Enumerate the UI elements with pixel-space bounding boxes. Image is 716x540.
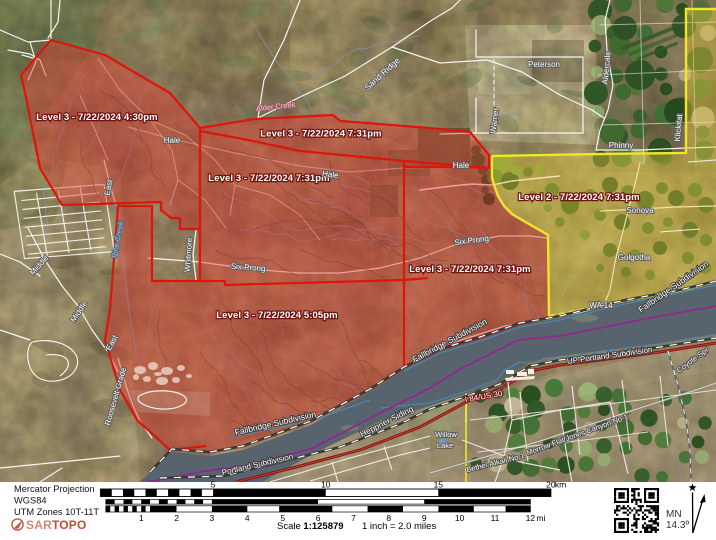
svg-text:15: 15 [434,480,444,490]
svg-text:WA 14: WA 14 [589,301,613,310]
svg-text:Level 2 - 7/22/2024 7:31pm: Level 2 - 7/22/2024 7:31pm [518,192,639,203]
svg-text:Level 3 - 7/22/2024 7:31pm: Level 3 - 7/22/2024 7:31pm [260,129,381,140]
svg-text:10: 10 [321,480,331,490]
svg-text:Lake: Lake [437,441,453,450]
svg-text:7: 7 [351,513,356,523]
svg-text:12: 12 [526,513,536,523]
svg-text:4: 4 [245,513,250,523]
svg-text:5: 5 [211,480,216,490]
svg-text:Phinny: Phinny [609,141,633,150]
svg-text:Level 3 - 7/22/2024 5:05pm: Level 3 - 7/22/2024 5:05pm [216,310,337,321]
svg-text:Level 3 - 7/22/2024 4:30pm: Level 3 - 7/22/2024 4:30pm [36,112,157,123]
svg-text:Willow: Willow [435,430,457,439]
svg-text:Level 3 - 7/22/2024 7:31pm: Level 3 - 7/22/2024 7:31pm [208,173,329,184]
svg-text:1 inch = 2.0 miles: 1 inch = 2.0 miles [362,521,436,532]
svg-text:3: 3 [210,513,215,523]
svg-text:km: km [555,480,566,490]
svg-text:Scale 1:125879: Scale 1:125879 [277,521,344,532]
svg-text:Hale: Hale [453,161,470,170]
svg-text:1: 1 [139,513,144,523]
svg-text:mi: mi [536,513,545,523]
svg-text:UTM Zones 10T-11T: UTM Zones 10T-11T [14,507,99,517]
svg-text:WGS84: WGS84 [14,496,47,506]
svg-text:14.3º: 14.3º [666,520,689,531]
svg-text:10: 10 [455,513,465,523]
svg-text:2: 2 [174,513,179,523]
svg-text:SARTOPO: SARTOPO [26,518,87,532]
svg-text:Hale: Hale [164,136,181,145]
svg-text:Mercator Projection: Mercator Projection [14,484,95,494]
svg-text:Level 3 - 7/22/2024 7:31pm: Level 3 - 7/22/2024 7:31pm [409,264,530,275]
svg-text:Golgotha: Golgotha [618,253,651,262]
svg-text:MN: MN [666,509,682,520]
svg-text:Peterson: Peterson [528,60,560,69]
svg-text:Sonova: Sonova [626,206,654,215]
svg-text:11: 11 [491,513,500,523]
